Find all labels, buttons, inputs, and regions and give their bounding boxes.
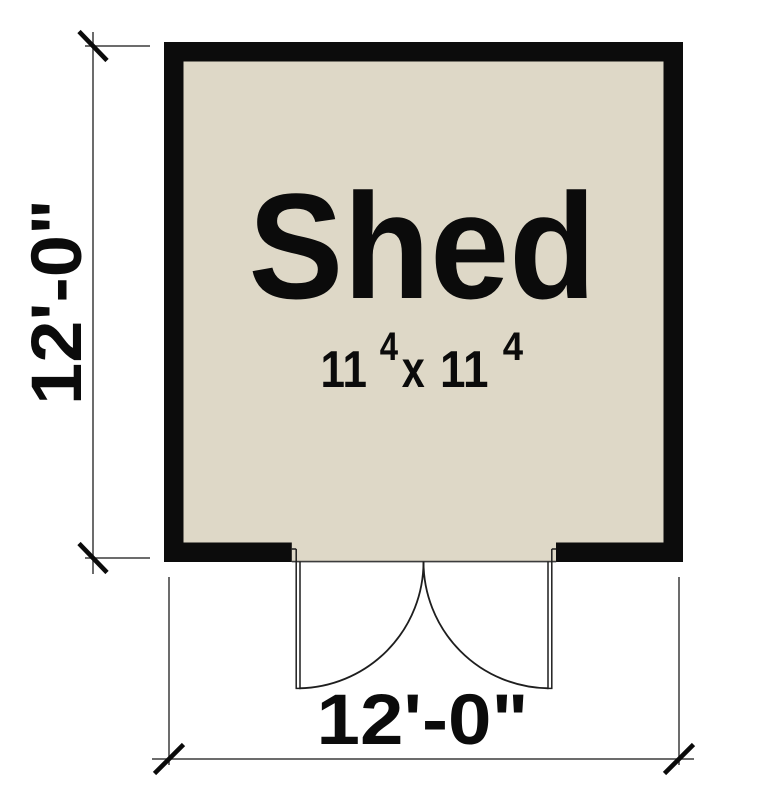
svg-text:12'-0": 12'-0" bbox=[18, 199, 97, 405]
svg-text:Shed: Shed bbox=[249, 162, 597, 330]
svg-text:x: x bbox=[402, 341, 425, 399]
svg-text:12'-0": 12'-0" bbox=[317, 681, 529, 760]
svg-text:4: 4 bbox=[503, 325, 524, 369]
svg-text:11: 11 bbox=[440, 341, 489, 399]
svg-text:11: 11 bbox=[321, 341, 368, 399]
svg-text:4: 4 bbox=[380, 325, 399, 369]
